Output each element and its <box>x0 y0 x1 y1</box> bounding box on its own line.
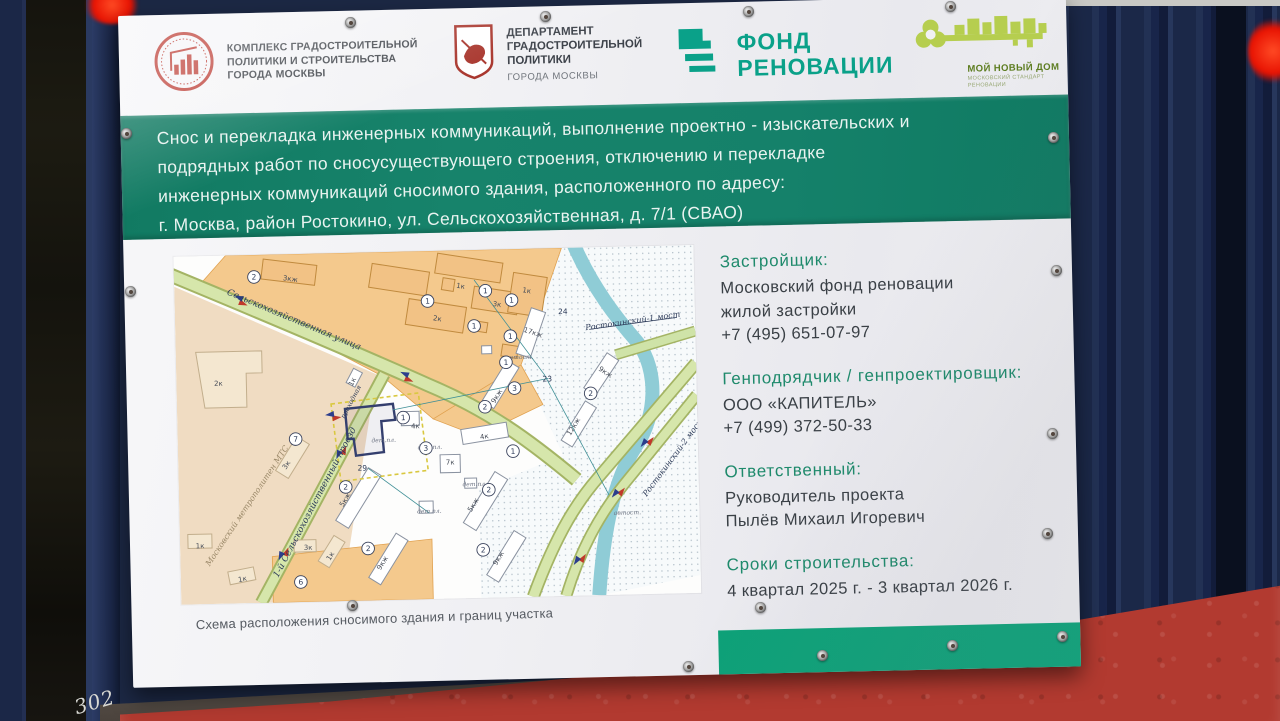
green-bottom-strip <box>718 622 1081 674</box>
map-circled-number: 1 <box>504 330 517 343</box>
svg-text:1: 1 <box>510 447 515 456</box>
svg-text:6: 6 <box>298 578 303 587</box>
map-label: 1к <box>522 286 532 295</box>
svg-text:2: 2 <box>343 482 348 491</box>
svg-text:1: 1 <box>503 358 508 367</box>
info-column: Застройщик: Московский фонд реновации жи… <box>720 245 1068 625</box>
grommet <box>345 17 356 28</box>
developer-heading: Застройщик: <box>720 245 1060 273</box>
dates-value: 4 квартал 2025 г. - 3 квартал 2026 г. <box>727 572 1067 603</box>
grommet <box>1047 428 1058 439</box>
responsible-heading: Ответственный: <box>724 454 1064 482</box>
map-label: 3к <box>304 544 313 552</box>
logo-renovation-fund: ФОНД РЕНОВАЦИИ <box>674 22 893 84</box>
map-circled-number: 3 <box>419 442 432 455</box>
map-circled-number: 1 <box>500 356 513 369</box>
logo-my-new-home: МОЙ НОВЫЙ ДОМ МОСКОВСКИЙ СТАНДАРТ РЕНОВА… <box>914 9 1066 91</box>
map-circled-number: 3 <box>508 382 521 395</box>
svg-text:1: 1 <box>508 332 513 341</box>
complex-logo-line: ГОРОДА МОСКВЫ <box>227 65 418 83</box>
map-label: 29 <box>357 463 367 472</box>
map-caption: Схема расположения сносимого здания и гр… <box>196 605 554 632</box>
weathered-fence-post <box>26 0 86 721</box>
grommet <box>125 286 136 297</box>
grommet <box>683 661 694 672</box>
map-label: 1к <box>456 282 466 291</box>
information-banner: КОМПЛЕКС ГРАДОСТРОИТЕЛЬНОЙ ПОЛИТИКИ И СТ… <box>118 0 1081 688</box>
department-logo-subline: ГОРОДА МОСКВЫ <box>507 69 643 83</box>
navy-fence-post <box>92 0 120 721</box>
map-circled-number: 2 <box>584 387 597 400</box>
construction-dates-block: Сроки строительства: 4 квартал 2025 г. -… <box>726 547 1067 603</box>
grommet <box>945 1 956 12</box>
map-circled-number: 7 <box>289 433 302 446</box>
my-new-home-subtitle: РЕНОВАЦИИ <box>968 81 1066 90</box>
fund-logo-line: ФОНД <box>736 25 893 55</box>
svg-text:2: 2 <box>251 273 256 282</box>
map-label: 23 <box>542 374 552 383</box>
map-label: 2к <box>432 314 442 323</box>
map-label: 24 <box>558 307 568 316</box>
grommet <box>347 600 358 611</box>
fund-logo-line: РЕНОВАЦИИ <box>737 51 894 81</box>
dates-heading: Сроки строительства: <box>726 547 1066 575</box>
svg-text:7: 7 <box>293 435 298 444</box>
map-label: 4к <box>411 422 420 430</box>
svg-text:1: 1 <box>425 297 430 306</box>
svg-text:1: 1 <box>509 296 514 305</box>
grommet <box>1042 528 1053 539</box>
map-circled-number: 1 <box>479 284 492 297</box>
green-key-icon <box>915 42 1065 62</box>
svg-text:2: 2 <box>481 545 486 554</box>
svg-text:1: 1 <box>472 322 477 331</box>
announcement-band: Снос и перекладка инженерных коммуникаци… <box>120 94 1071 239</box>
map-label: 1к <box>237 575 247 585</box>
grommet <box>540 11 551 22</box>
grommet <box>121 128 132 139</box>
grommet <box>1057 631 1068 642</box>
svg-text:2: 2 <box>486 485 491 494</box>
map-label: 7к <box>446 458 455 466</box>
grommet <box>947 640 958 651</box>
map-label: 3к <box>492 300 502 309</box>
construction-complex-emblem-icon <box>152 30 216 98</box>
map-label: дет.пл. <box>371 437 396 445</box>
map-circled-number: 2 <box>362 542 375 555</box>
grommet <box>1048 132 1059 143</box>
map-circled-number: 6 <box>294 576 307 589</box>
responsible-block: Ответственный: Руководитель проекта Пылё… <box>724 454 1066 534</box>
site-plan-map: Сельскохозяйственная улица1-й Сельскохоз… <box>173 245 701 605</box>
map-circled-number: 2 <box>479 400 492 413</box>
renovation-fund-glyph-icon <box>674 26 725 84</box>
svg-text:2: 2 <box>588 389 593 398</box>
map-circled-number: 1 <box>507 445 520 458</box>
map-circled-number: 1 <box>397 411 410 424</box>
map-circled-number: 2 <box>482 483 495 496</box>
svg-text:2: 2 <box>366 544 371 553</box>
fence-panel-gap <box>1216 6 1246 646</box>
grommet <box>1051 265 1062 276</box>
map-circled-number: 2 <box>339 481 352 494</box>
svg-text:3: 3 <box>512 384 517 393</box>
photo-of-construction-banner: 302 КОМПЛЕКС ГРАДОСТРОИТ <box>0 0 1280 721</box>
grommet <box>817 650 828 661</box>
logo-construction-complex: КОМПЛЕКС ГРАДОСТРОИТЕЛЬНОЙ ПОЛИТИКИ И СТ… <box>152 25 418 98</box>
map-label: дет.пл. <box>417 508 442 516</box>
grommet <box>743 6 754 17</box>
my-new-home-title: МОЙ НОВЫЙ ДОМ <box>967 62 1065 75</box>
map-circled-number: 2 <box>248 271 261 284</box>
svg-text:1: 1 <box>483 286 488 295</box>
map-circled-number: 1 <box>421 295 434 308</box>
map-circled-number: 2 <box>477 543 490 556</box>
logo-department: ДЕПАРТАМЕНТ ГРАДОСТРОИТЕЛЬНОЙ ПОЛИТИКИ Г… <box>452 20 643 87</box>
department-logo-line: ПОЛИТИКИ <box>507 51 643 68</box>
map-circled-number: 1 <box>505 294 518 307</box>
map-circled-number: 1 <box>468 320 481 333</box>
map-label: автост. <box>614 509 642 517</box>
grommet <box>755 602 766 613</box>
developer-block: Застройщик: Московский фонд реновации жи… <box>720 245 1062 348</box>
map-label: 1к <box>196 542 205 550</box>
contractor-block: Генподрядчик / генпроектировщик: ООО «КА… <box>722 361 1064 441</box>
svg-text:3: 3 <box>423 444 428 453</box>
map-label: 2к <box>214 380 223 388</box>
contractor-heading: Генподрядчик / генпроектировщик: <box>722 361 1062 389</box>
svg-text:1: 1 <box>401 413 406 422</box>
moscow-coat-of-arms-icon <box>452 23 495 87</box>
svg-text:2: 2 <box>482 402 487 411</box>
map-label: 4к <box>479 432 489 441</box>
